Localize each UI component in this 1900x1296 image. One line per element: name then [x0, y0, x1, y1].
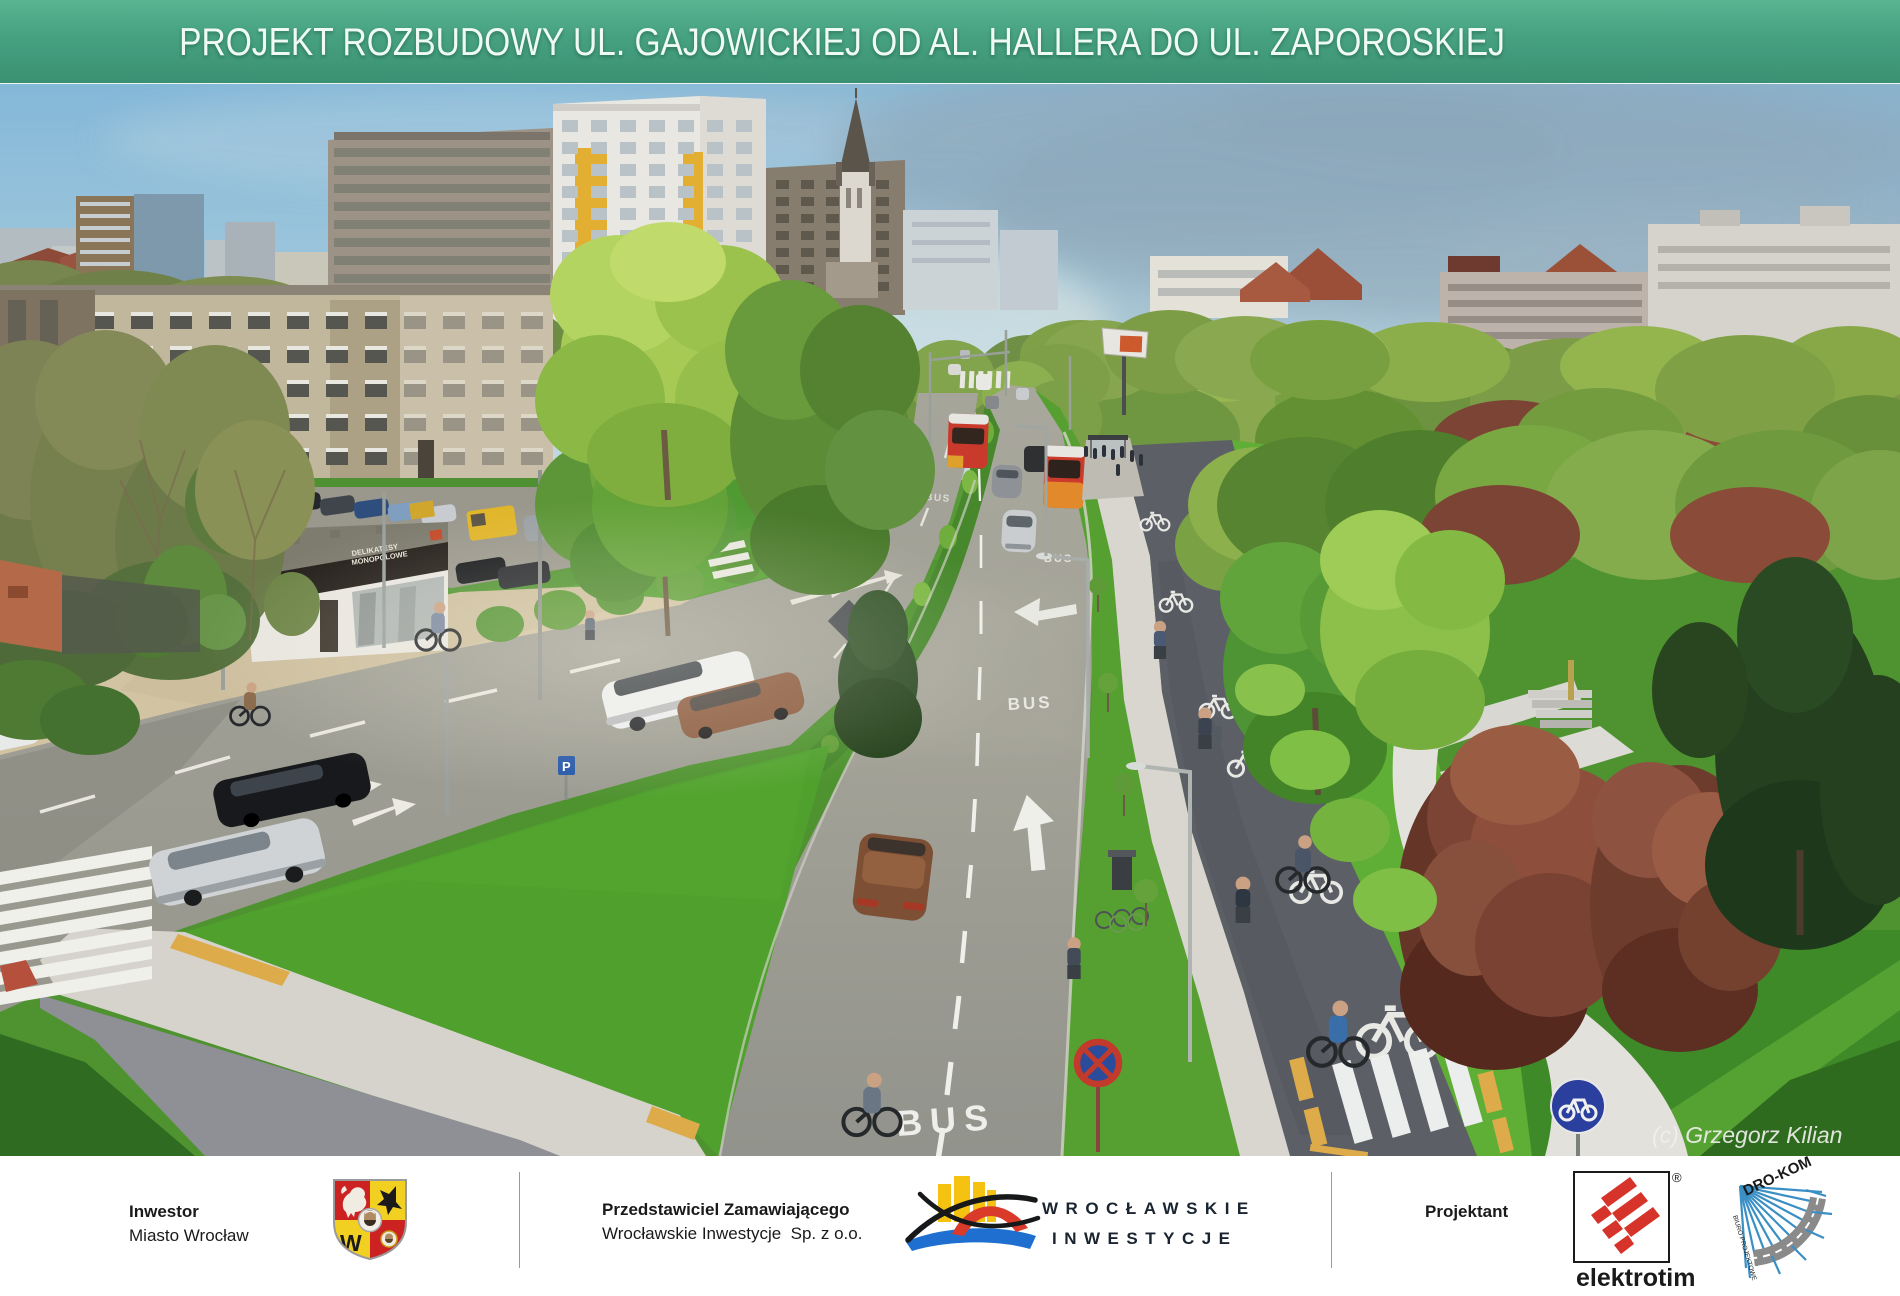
svg-text:(c) Grzegorz Kilian: (c) Grzegorz Kilian	[1652, 1122, 1842, 1148]
svg-text:®: ®	[1672, 1170, 1682, 1185]
svg-text:WROCŁAWSKIE: WROCŁAWSKIE	[1042, 1199, 1256, 1218]
svg-text:BUS: BUS	[895, 1096, 998, 1144]
svg-text:elektrotim: elektrotim	[1576, 1264, 1695, 1292]
svg-text:INWESTYCJE: INWESTYCJE	[1052, 1229, 1238, 1248]
